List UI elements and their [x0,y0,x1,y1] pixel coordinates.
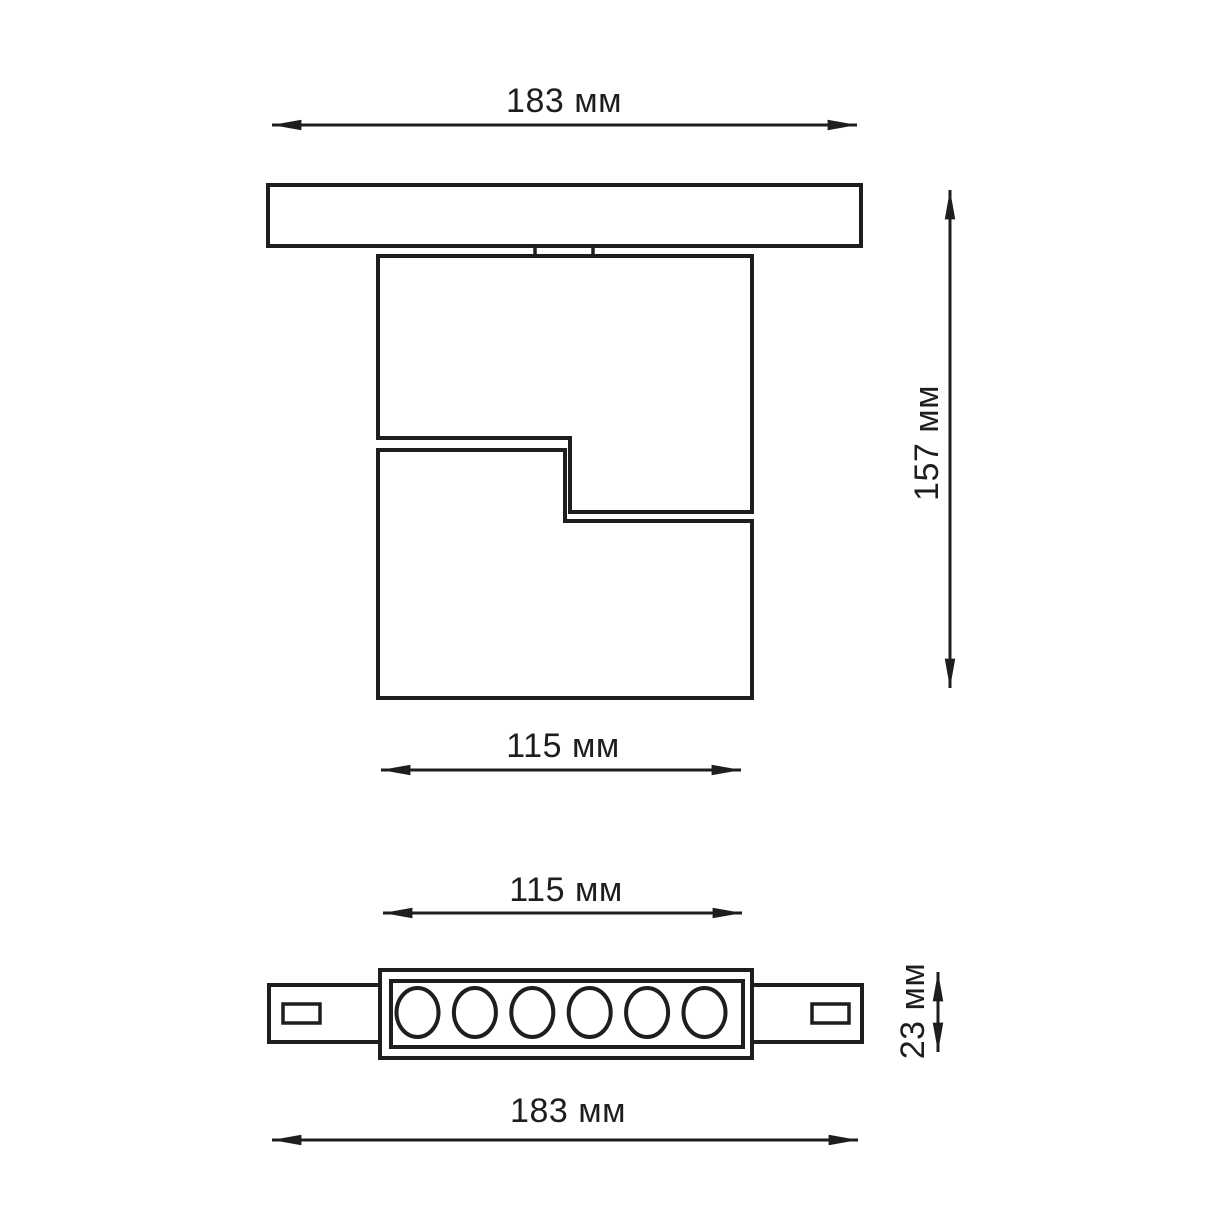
dimension-track-width-top: 183 мм [272,82,857,125]
mounting-hole-left [283,1004,320,1023]
dimension-label-track-width-bottom: 183 мм [510,1092,626,1130]
dimension-drawing-page: 183 мм 157 мм 115 мм [0,0,1220,1220]
dimension-label-body-width-side: 115 мм [506,727,619,765]
dimension-body-width-front: 115 мм [383,871,742,913]
lamp-body-front [380,970,752,1058]
track-profile [268,185,861,246]
dimension-track-width-bottom: 183 мм [272,1092,858,1140]
dimension-label-overall-height: 157 мм [908,385,946,501]
dimension-label-track-width-top: 183 мм [506,82,622,120]
dimension-body-height-front: 23 мм [894,963,938,1060]
dimension-label-body-width-front: 115 мм [509,871,622,909]
front-view: 115 мм 23 мм 183 мм [269,871,938,1140]
dimension-overall-height: 157 мм [908,190,950,688]
technical-drawing: 183 мм 157 мм 115 мм [0,0,1220,1220]
side-view: 183 мм 157 мм 115 мм [268,82,950,770]
dimension-label-body-height-front: 23 мм [894,963,932,1060]
mounting-hole-right [812,1004,849,1023]
dimension-body-width-side: 115 мм [381,727,741,770]
